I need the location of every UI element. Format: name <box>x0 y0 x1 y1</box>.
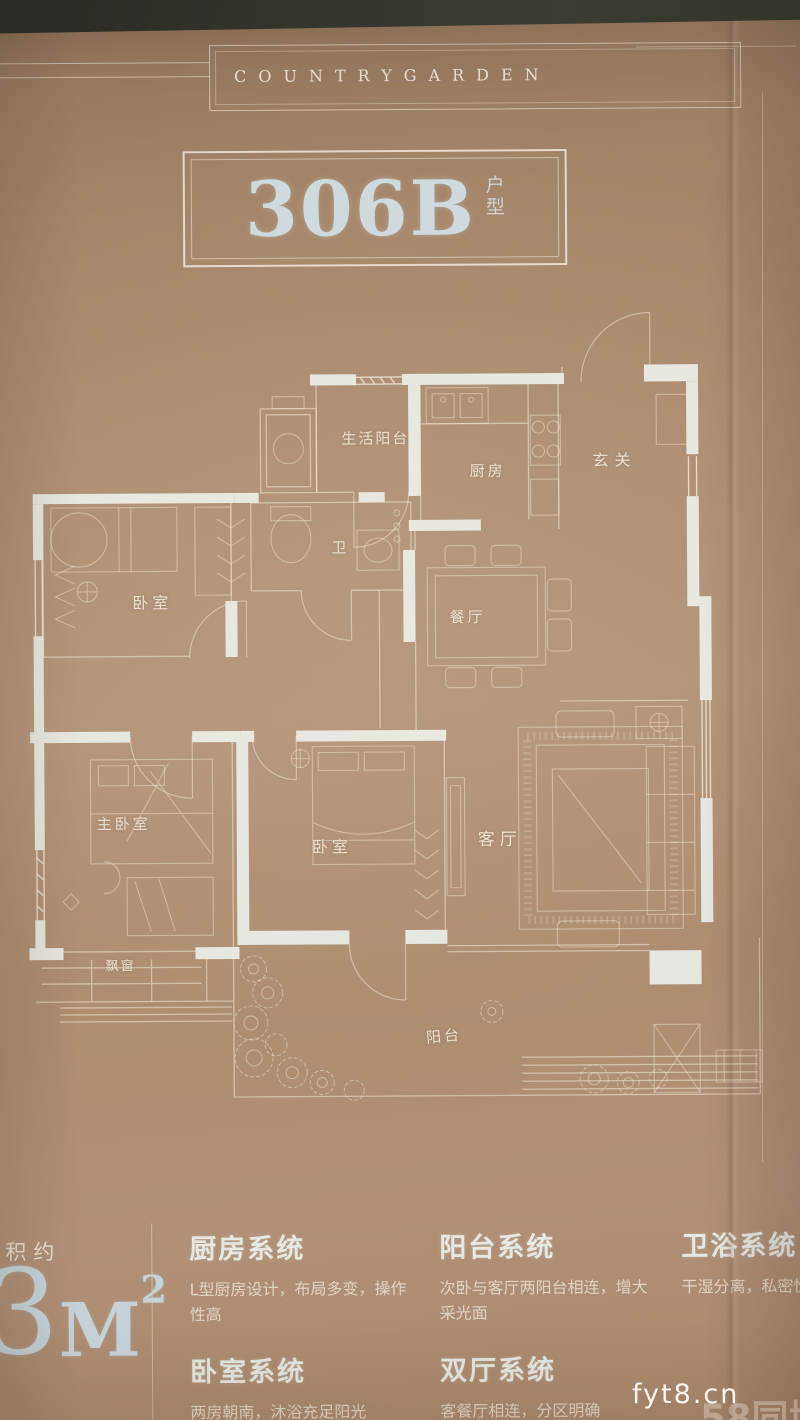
room-label-bedroom-second: 卧室 <box>312 833 352 857</box>
system-desc-balcony: 次卧与客厅两阳台相连，增大采光面 <box>439 1275 657 1326</box>
unit-type-char1: 户 <box>486 174 505 196</box>
brand-logo-text: COUNTRYGARDEN <box>234 44 551 108</box>
brand-logo-box: COUNTRYGARDEN <box>209 42 741 111</box>
system-title-double-hall: 双厅系统 <box>440 1347 658 1387</box>
unit-type-label: 户 型 <box>486 174 505 218</box>
area-superscript: 2 <box>140 1270 167 1308</box>
room-label-service-balcony: 生活阳台 <box>341 427 409 448</box>
system-desc-double-hall: 客餐厅相连，分区明确 <box>440 1398 658 1420</box>
area-digit: 3 <box>0 1258 59 1367</box>
layout-suffix: 厅一卫 <box>4 1408 142 1420</box>
area-stats: 面积约 3 M 2 厅一卫 <box>3 1230 153 1231</box>
systems-column-3: 卫浴系统 干湿分离，私密性 <box>681 1224 800 1323</box>
header-line <box>0 76 209 78</box>
room-label-kitchen: 厨房 <box>469 460 505 481</box>
unit-title-box: 306B 户 型 <box>183 149 568 267</box>
area-unit: M <box>59 1296 141 1367</box>
system-title-kitchen: 厨房系统 <box>189 1226 407 1266</box>
room-label-master-bedroom: 主卧室 <box>97 813 151 834</box>
system-desc-bath: 干湿分离，私密性 <box>681 1275 800 1301</box>
brochure-photo: COUNTRYGARDEN 306B 户 型 <box>0 0 800 1420</box>
room-label-foyer: 玄关 <box>592 447 636 471</box>
header-line <box>0 62 209 64</box>
room-label-bay-window: 飘窗 <box>105 955 135 974</box>
room-label-living: 客厅 <box>478 825 522 850</box>
room-label-bedroom-north: 卧室 <box>132 589 172 613</box>
unit-title-inner: 306B 户 型 <box>191 157 560 259</box>
doors-layer <box>128 312 654 1001</box>
area-value: 3 M 2 <box>0 1257 167 1367</box>
floorplan-drawing <box>0 298 800 1133</box>
room-label-dining: 餐厅 <box>449 606 485 627</box>
watermark-platform: 58同城 <box>700 1388 800 1420</box>
system-title-bath: 卫浴系统 <box>681 1224 800 1264</box>
room-label-bathroom: 卫 <box>331 537 346 558</box>
brochure-sheet: COUNTRYGARDEN 306B 户 型 <box>0 0 800 1420</box>
page-border-line <box>762 92 763 1162</box>
unit-type-char2: 型 <box>486 196 505 218</box>
system-title-bedroom: 卧室系统 <box>190 1349 408 1389</box>
unit-code: 306B <box>245 163 476 253</box>
systems-column-1: 厨房系统 L型厨房设计，布局多变，操作性高 卧室系统 两房朝南，沐浴充足阳光 <box>189 1226 408 1420</box>
system-desc-kitchen: L型厨房设计，布局多变，操作性高 <box>189 1277 407 1328</box>
systems-column-2: 阳台系统 次卧与客厅两阳台相连，增大采光面 双厅系统 客餐厅相连，分区明确 <box>439 1224 658 1420</box>
room-label-balcony: 阳台 <box>425 1024 463 1048</box>
system-desc-bedroom: 两房朝南，沐浴充足阳光 <box>190 1400 408 1420</box>
system-title-balcony: 阳台系统 <box>439 1224 657 1264</box>
